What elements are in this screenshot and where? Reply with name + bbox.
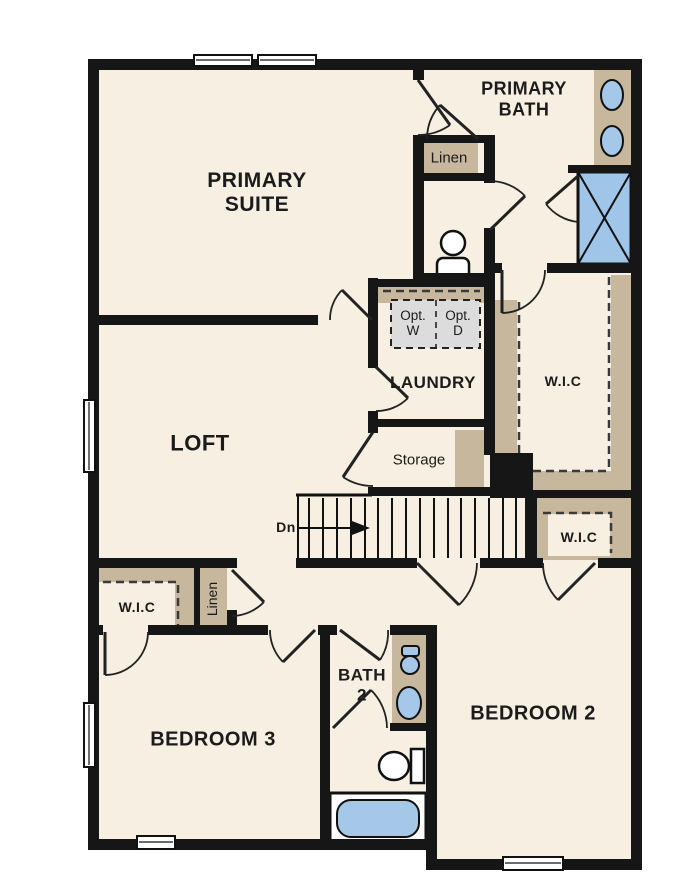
wic-shelf-bottom (533, 471, 611, 490)
window (84, 703, 95, 767)
wic-shelf-left (495, 300, 517, 455)
room-label-wic-bedroom3: W.I.C (119, 599, 156, 615)
shower-icon (578, 172, 631, 264)
room-label-primary-suite: PRIMARY SUITE (187, 169, 327, 217)
room-label-loft: LOFT (170, 430, 229, 455)
room-label-linen-upper: Linen (431, 149, 468, 166)
window (137, 836, 175, 849)
room-label-bedroom3: BEDROOM 3 (150, 729, 276, 752)
stairs-direction-label: Dn (276, 519, 296, 535)
room-label-bath2: BATH 2 (331, 666, 393, 707)
room-label-wic-bedroom2: W.I.C (561, 529, 598, 545)
room-label-primary-bath: PRIMARY BATH (469, 78, 579, 119)
window (194, 55, 252, 66)
bathtub-icon (330, 793, 426, 843)
bath2-sink-icon (397, 687, 421, 719)
storage-shelf (455, 430, 484, 494)
bath2-toilet-icon (401, 646, 419, 674)
room-label-storage: Storage (393, 451, 446, 468)
optional-washer-label: Opt. W (395, 309, 431, 339)
window (258, 55, 316, 66)
bath2-toilet (379, 749, 424, 783)
vanity-sink-icon (601, 126, 623, 156)
room-label-wic-primary: W.I.C (545, 373, 582, 389)
window (503, 857, 563, 870)
room-label-bedroom2: BEDROOM 2 (470, 703, 596, 726)
window (84, 400, 95, 472)
wic-shelf-right (611, 275, 631, 490)
vanity-sink-icon (601, 80, 623, 110)
optional-dryer-label: Opt. D (440, 309, 476, 339)
floor-plan-drawing (0, 0, 679, 880)
floor-plan: PRIMARY SUITE PRIMARY BATH LOFT Linen LA… (0, 0, 679, 880)
room-label-linen-hall: Linen (204, 582, 220, 616)
room-label-laundry: LAUNDRY (390, 373, 476, 393)
